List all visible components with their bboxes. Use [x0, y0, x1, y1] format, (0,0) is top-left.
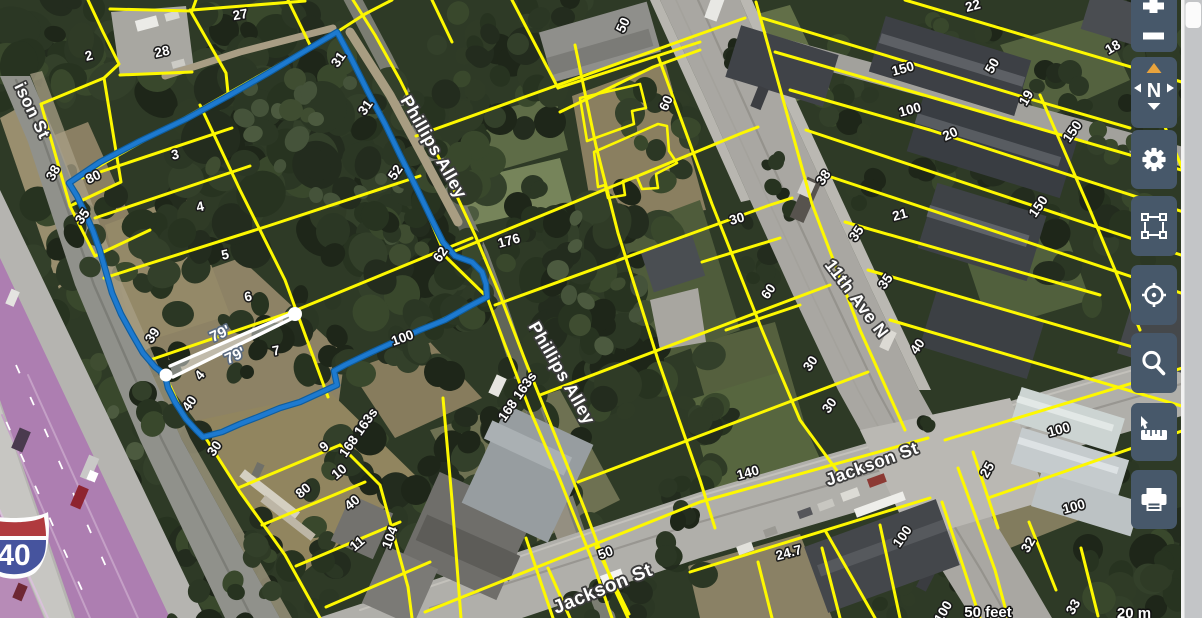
svg-text:40: 40: [0, 539, 31, 572]
svg-text:27: 27: [232, 6, 249, 23]
svg-text:20 m: 20 m: [1117, 605, 1151, 618]
svg-text:N: N: [1147, 80, 1161, 102]
svg-text:50 feet: 50 feet: [964, 604, 1012, 618]
